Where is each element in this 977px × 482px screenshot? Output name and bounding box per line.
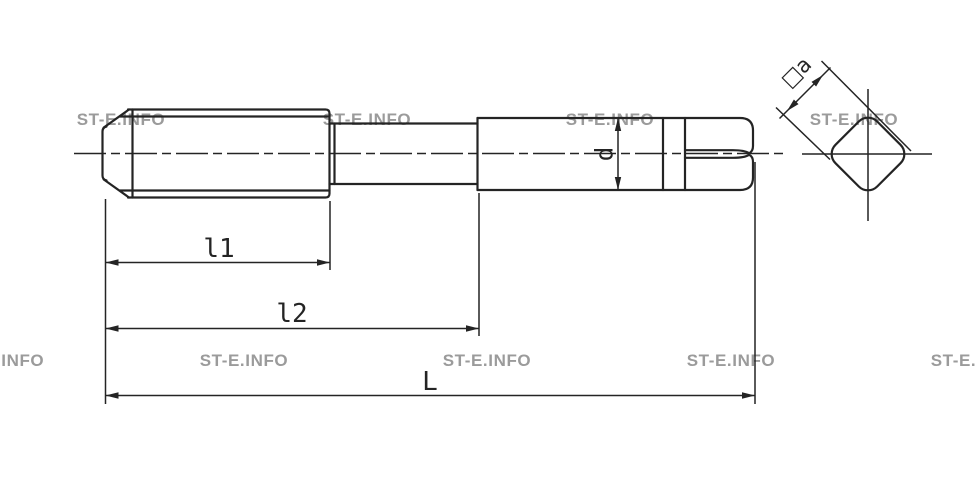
thread-chamfer-bottom <box>104 180 129 198</box>
slot-top-line <box>685 150 749 153</box>
label-l1: l1 <box>203 234 234 264</box>
dimension-d: d <box>590 118 621 190</box>
label-d: d <box>590 147 618 161</box>
square-a-extension-line-lower <box>776 108 830 160</box>
dimension-l1: l1 <box>106 201 331 270</box>
d-arrow-top <box>615 118 621 131</box>
L-arrow-right <box>742 392 755 398</box>
tap-technical-drawing-page: ST-E.INFOST-E.INFOST-E.INFOST-E.INFOST-E… <box>0 0 977 482</box>
L-arrow-left <box>106 392 119 398</box>
dimension-square-a: □a <box>776 52 911 159</box>
dimensions: l1 l2 L d <box>106 118 756 404</box>
l1-arrow-right <box>317 259 330 265</box>
l2-arrow-right <box>466 325 479 331</box>
tap-end-view: □a <box>776 52 932 221</box>
label-l2: l2 <box>276 299 307 329</box>
d-arrow-bottom <box>615 177 621 190</box>
tap-technical-drawing: □a l1 l2 <box>0 0 977 482</box>
label-L: L <box>422 367 438 397</box>
label-square-a: □a <box>776 52 816 92</box>
slot-bottom-line <box>685 155 749 158</box>
square-a-extension-line-upper <box>822 61 912 151</box>
l1-arrow-left <box>106 259 119 265</box>
tap-side-view <box>74 110 787 198</box>
l2-arrow-left <box>106 325 119 331</box>
dimension-l2: l2 <box>106 193 480 336</box>
thread-chamfer-top <box>104 110 129 128</box>
